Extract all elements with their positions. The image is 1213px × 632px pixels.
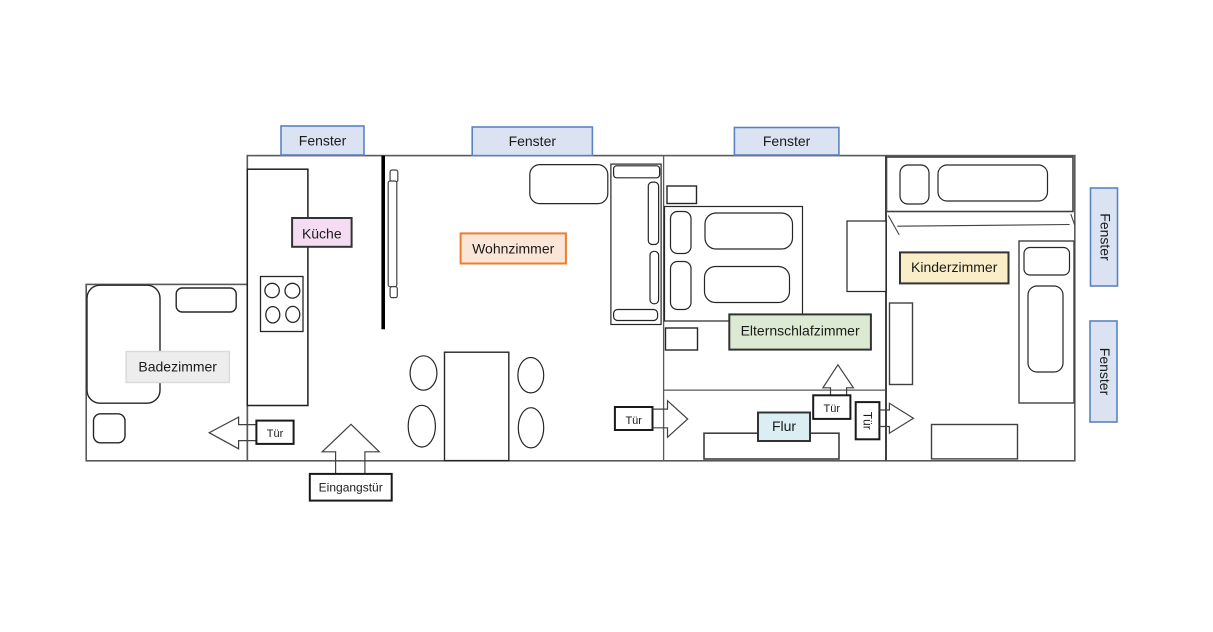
svg-text:Küche: Küche (302, 225, 342, 241)
svg-text:Fenster: Fenster (1098, 213, 1114, 261)
svg-text:Tür: Tür (625, 415, 642, 427)
svg-text:Eingangstür: Eingangstür (319, 481, 383, 495)
svg-text:Tür: Tür (861, 412, 875, 430)
svg-text:Flur: Flur (772, 418, 796, 434)
svg-text:Fenster: Fenster (509, 133, 557, 149)
svg-text:Fenster: Fenster (299, 133, 347, 149)
svg-text:Fenster: Fenster (1097, 348, 1113, 396)
svg-text:Fenster: Fenster (763, 133, 811, 149)
svg-text:Badezimmer: Badezimmer (138, 359, 217, 375)
svg-text:Tür: Tür (824, 403, 841, 415)
svg-text:Wohnzimmer: Wohnzimmer (472, 241, 555, 257)
svg-text:Tür: Tür (267, 428, 284, 440)
svg-text:Kinderzimmer: Kinderzimmer (911, 259, 998, 275)
svg-text:Elternschlafzimmer: Elternschlafzimmer (741, 323, 860, 339)
